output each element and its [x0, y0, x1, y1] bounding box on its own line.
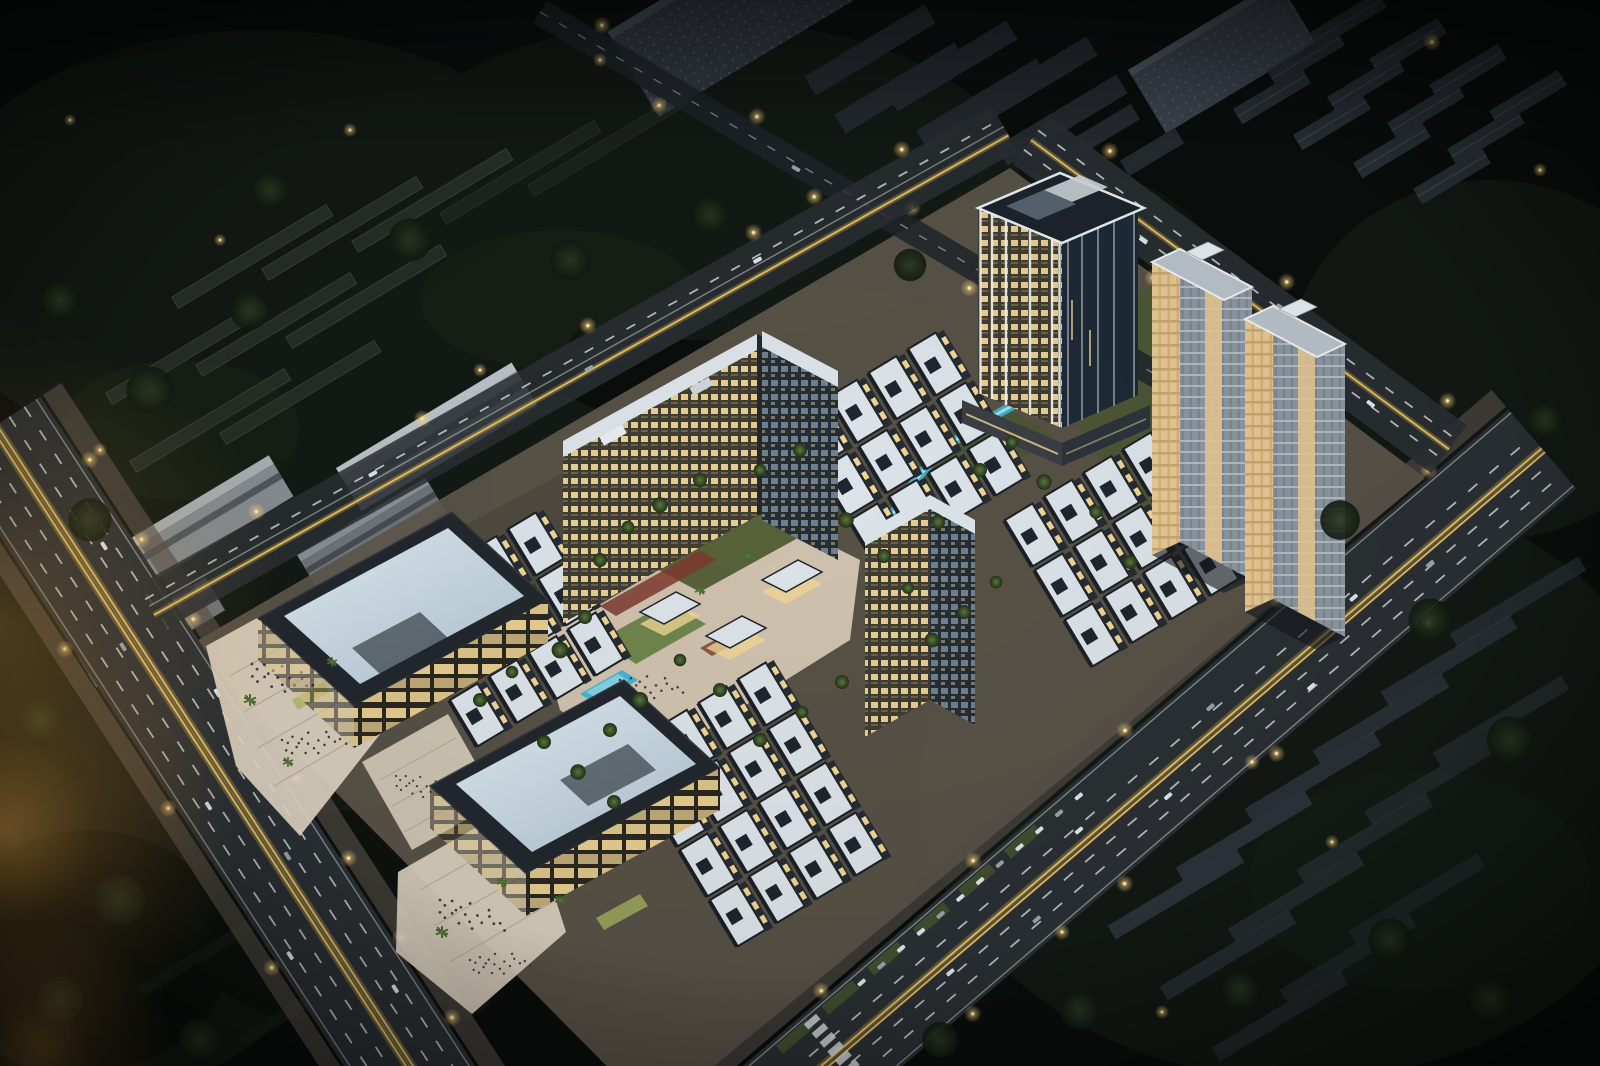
vignette [0, 0, 1600, 1066]
aerial-rendering [0, 0, 1600, 1066]
scene-canvas [0, 0, 1600, 1066]
